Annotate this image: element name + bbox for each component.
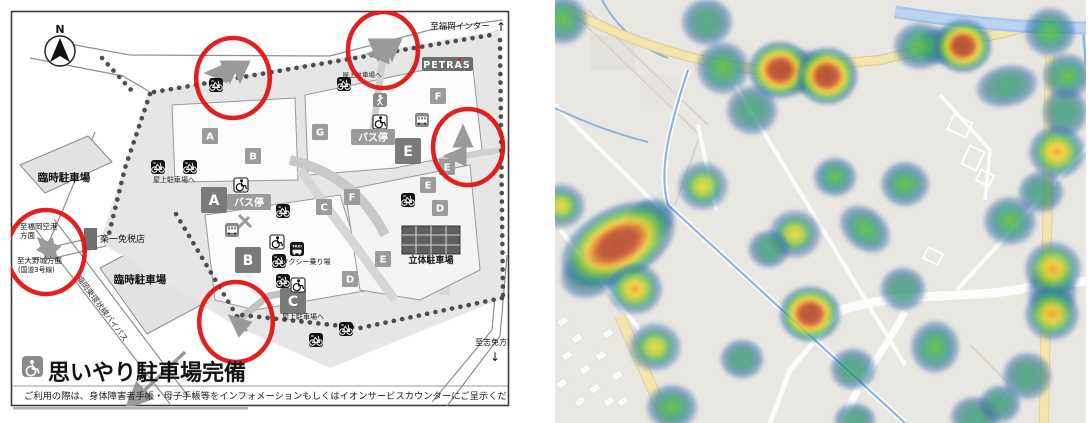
arrow-down-glyph: ↓ xyxy=(490,350,500,364)
svg-text:A: A xyxy=(209,193,220,209)
heat-blob-teal xyxy=(725,84,779,136)
wheelchair-icon xyxy=(291,278,305,292)
two-map-figure: N ABCEABGCFFEEDDE TAXI PETRAS バス停 バス停 至福… xyxy=(0,0,1092,423)
svg-text:C: C xyxy=(320,203,327,214)
heat-blob-green xyxy=(812,156,858,198)
multistory-parking-structure xyxy=(402,226,460,254)
heat-blob-yellow xyxy=(627,321,683,373)
bus-stop-label: バス停 xyxy=(234,196,264,209)
bus-stop-label: バス停 xyxy=(358,131,388,144)
heatmap-figure xyxy=(535,0,1092,423)
parking-map-figure: N ABCEABGCFFEEDDE TAXI PETRAS バス停 バス停 至福… xyxy=(7,12,534,411)
bicycle-parking-icon xyxy=(276,274,290,288)
building-tile-large-E: E xyxy=(395,138,421,164)
svg-text:B: B xyxy=(249,152,257,163)
wheelchair-icon xyxy=(270,235,284,249)
svg-text:A: A xyxy=(206,132,214,143)
wheelchair-icon xyxy=(373,115,387,129)
bicycle-parking-icon xyxy=(401,193,415,207)
bus-stop-sign-1: バス停 xyxy=(227,194,271,210)
svg-text:TAXI: TAXI xyxy=(292,243,302,248)
svg-text:E: E xyxy=(380,255,387,266)
building-tile-small-G: G xyxy=(312,124,328,140)
bus-icon xyxy=(225,223,239,237)
heat-blob-teal xyxy=(747,229,791,269)
heat-blob-teal xyxy=(829,347,877,391)
label-rooftop-1: 屋上駐車場へ xyxy=(153,175,195,184)
building-tile-small-B: B xyxy=(245,148,261,164)
heat-blob-yellow xyxy=(676,160,730,212)
bicycle-parking-icon xyxy=(209,78,223,92)
svg-text:B: B xyxy=(243,253,254,269)
building-tile-small-E: E xyxy=(375,251,391,267)
footer-wheelchair-icon xyxy=(22,356,43,377)
svg-text:G: G xyxy=(316,128,324,139)
bus-icon xyxy=(415,113,429,127)
heat-blob-green xyxy=(909,319,961,375)
footer-note: ご利用の際は、身体障害者手帳・母子手帳等をインフォメーションもしくはイオンサービ… xyxy=(24,390,535,402)
building-tile-small-D: D xyxy=(432,200,448,216)
label-airport-2: 方面 xyxy=(20,230,35,240)
label-dutyfree: 楽一免税店 xyxy=(100,233,145,245)
bicycle-parking-icon xyxy=(339,322,353,336)
petras-label: PETRAS xyxy=(423,60,470,71)
heat-blob-teal xyxy=(978,384,1022,423)
building-tile-small-D: D xyxy=(342,271,358,287)
heat-blob-teal xyxy=(879,266,927,312)
heat-blob-red xyxy=(933,18,993,74)
building-tile-large-B: B xyxy=(235,247,261,273)
svg-text:C: C xyxy=(288,294,298,310)
label-to-fukuoka-inter: 至福岡インター xyxy=(430,21,490,32)
svg-text:E: E xyxy=(403,144,413,160)
building-tile-small-F: F xyxy=(344,189,360,205)
compass-label: N xyxy=(55,23,64,36)
scan-shadow xyxy=(13,407,248,410)
petras-sign: PETRAS xyxy=(422,57,473,71)
label-to-shime: 至志免方面 xyxy=(475,337,515,347)
bus-stop-sign-2: バス停 xyxy=(351,129,395,145)
svg-text:D: D xyxy=(346,275,354,286)
svg-text:D: D xyxy=(436,204,444,215)
label-onojo-1: 至大野城方面 xyxy=(17,255,62,265)
bicycle-parking-icon xyxy=(183,160,197,174)
svg-text:F: F xyxy=(435,92,442,103)
taxi-icon: TAXI xyxy=(290,242,304,256)
heat-blob-red xyxy=(778,285,842,343)
heat-blob-green xyxy=(1023,6,1077,58)
building-tile-small-F: F xyxy=(430,88,446,104)
label-onojo-2: (国道3号線) xyxy=(18,265,55,274)
bicycle-parking-icon xyxy=(151,160,165,174)
bicycle-parking-icon xyxy=(337,77,351,91)
petras-logo-dot xyxy=(458,58,461,61)
heat-blob-yellow xyxy=(535,182,587,230)
svg-text:F: F xyxy=(349,193,356,204)
svg-text:E: E xyxy=(444,163,451,174)
heat-blob-green xyxy=(1041,52,1092,100)
label-taxi-stand: タクシー乗り場 xyxy=(282,257,331,266)
figure-canvas: N ABCEABGCFFEEDDE TAXI PETRAS バス停 バス停 至福… xyxy=(0,0,1092,423)
label-airport-1: 至福岡空港 xyxy=(20,221,58,231)
label-temp-parking-2: 臨時駐車場 xyxy=(114,273,167,286)
label-temp-parking-1: 臨時駐車場 xyxy=(38,171,91,184)
heat-blob-green xyxy=(879,160,931,208)
bicycle-parking-icon xyxy=(276,204,290,218)
bicycle-parking-icon xyxy=(309,333,323,347)
heat-blob-teal xyxy=(719,338,765,380)
heat-blob-red xyxy=(795,46,859,106)
heat-blob-orange xyxy=(1023,286,1081,342)
walk-icon xyxy=(373,93,387,107)
heat-blob-green xyxy=(982,195,1038,247)
label-multistory-parking: 立体駐車場 xyxy=(408,254,453,266)
building-tile-small-A: A xyxy=(202,128,218,144)
building-tile-large-A: A xyxy=(201,187,227,213)
label-rooftop-3: 屋上駐車場へ xyxy=(282,312,324,321)
arrow-up-glyph: ↑ xyxy=(496,20,506,34)
building-tile-small-C: C xyxy=(316,199,332,215)
building-tile-small-E: E xyxy=(420,177,436,193)
wheelchair-icon xyxy=(234,178,248,192)
svg-text:E: E xyxy=(425,181,432,192)
heat-blob-orange xyxy=(606,262,664,316)
footer-heading: 思いやり駐車場完備 xyxy=(48,360,246,386)
